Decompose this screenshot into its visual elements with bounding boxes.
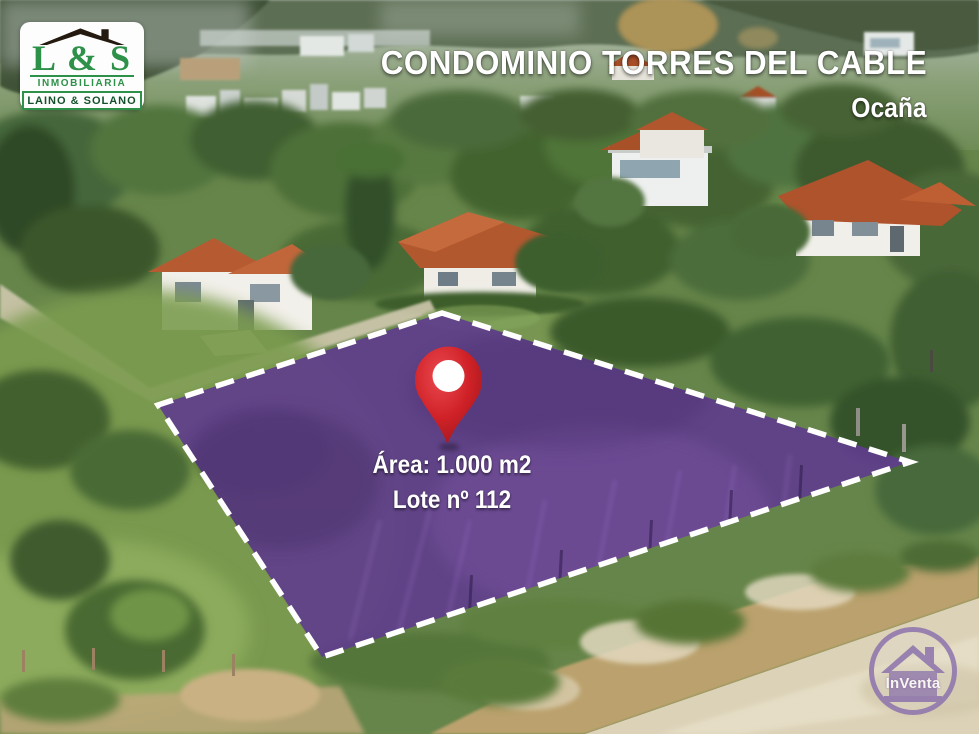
aerial-photo [0, 0, 979, 734]
ls-inmobiliaria-logo: L & S INMOBILIARIA LAINO & SOLANO [20, 22, 144, 110]
ls-initials: L & S [32, 43, 132, 73]
inventa-watermark: InVenta [869, 627, 957, 715]
lot-number-label: Lote nº 112 [290, 483, 614, 518]
ls-name-label: LAINO & SOLANO [27, 95, 136, 107]
page-subtitle: Ocaña [852, 92, 927, 124]
house-icon [869, 627, 957, 715]
real-estate-flyer: CONDOMINIO TORRES DEL CABLE Ocaña Área: … [0, 0, 979, 734]
divider [30, 75, 134, 77]
lot-area-label: Área: 1.000 m2 [290, 448, 614, 483]
lot-labels: Área: 1.000 m2 Lote nº 112 [290, 448, 614, 518]
ls-inmobiliaria-label: INMOBILIARIA [38, 78, 127, 89]
inventa-label: InVenta [869, 675, 957, 692]
ls-name-box: LAINO & SOLANO [22, 91, 141, 110]
page-title: CONDOMINIO TORRES DEL CABLE [381, 44, 927, 82]
